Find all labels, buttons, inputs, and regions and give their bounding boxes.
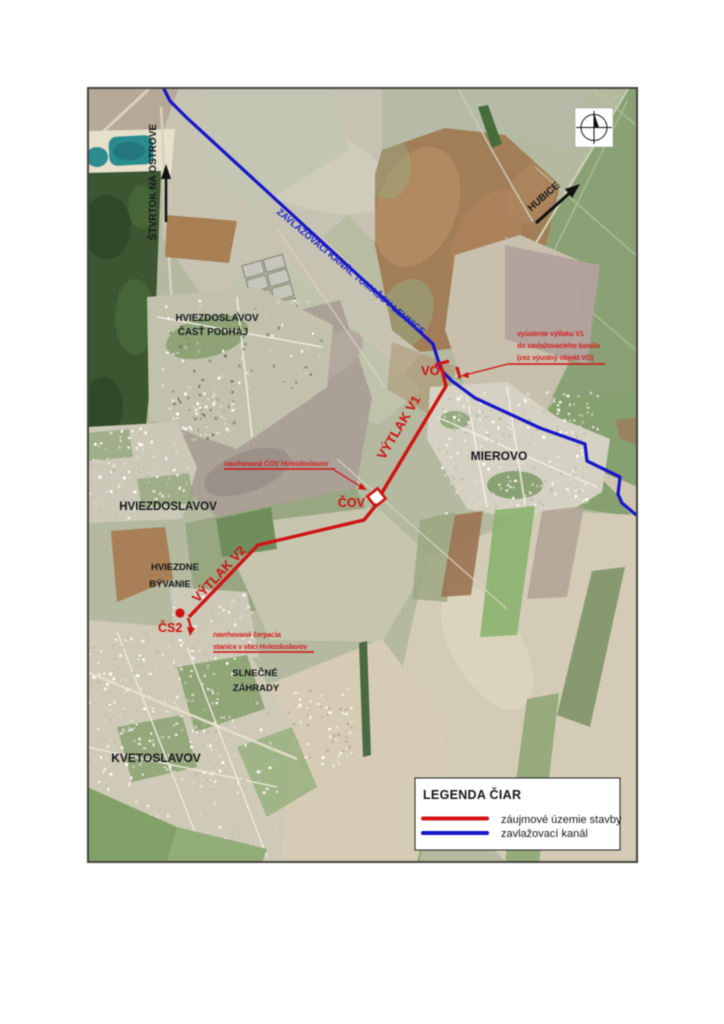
- svg-text:BÝVANIE: BÝVANIE: [149, 578, 191, 590]
- svg-text:stanica v obci Hviezdoslavov: stanica v obci Hviezdoslavov: [213, 642, 307, 651]
- svg-text:ČS2: ČS2: [158, 620, 182, 635]
- svg-text:KVETOSLAVOV: KVETOSLAVOV: [111, 751, 201, 765]
- svg-text:navrhovaná ČOV Hviezdoslavov: navrhovaná ČOV Hviezdoslavov: [224, 459, 328, 468]
- svg-text:ZÁHRADY: ZÁHRADY: [233, 683, 280, 694]
- svg-text:LEGENDA ČIAR: LEGENDA ČIAR: [423, 787, 521, 802]
- svg-text:zavlažovací kanál: zavlažovací kanál: [501, 828, 588, 840]
- svg-text:do zavlažovacieho kanála: do zavlažovacieho kanála: [517, 341, 601, 350]
- svg-text:ČOV: ČOV: [338, 495, 366, 510]
- svg-text:záujmové územie stavby: záujmové územie stavby: [501, 814, 622, 826]
- svg-text:vyústenie výtlaku V1: vyústenie výtlaku V1: [517, 329, 584, 338]
- svg-text:HVIEZDNE: HVIEZDNE: [151, 562, 199, 573]
- svg-text:MIEROVO: MIEROVO: [471, 449, 528, 463]
- svg-text:ČASŤ PODHÁJ: ČASŤ PODHÁJ: [178, 326, 248, 338]
- svg-text:VO: VO: [421, 363, 440, 378]
- svg-text:HVIEZDOSLAVOV: HVIEZDOSLAVOV: [119, 501, 217, 513]
- svg-text:(cez výustný objekt VO): (cez výustný objekt VO): [517, 353, 594, 362]
- svg-text:SLNEČNÉ: SLNEČNÉ: [232, 667, 277, 679]
- svg-text:navrhovaná čerpacia: navrhovaná čerpacia: [213, 630, 282, 639]
- svg-text:HVIEZDOSLAVOV: HVIEZDOSLAVOV: [175, 313, 259, 324]
- svg-text:ŠTVRTOK NA OSTROVE: ŠTVRTOK NA OSTROVE: [146, 124, 159, 240]
